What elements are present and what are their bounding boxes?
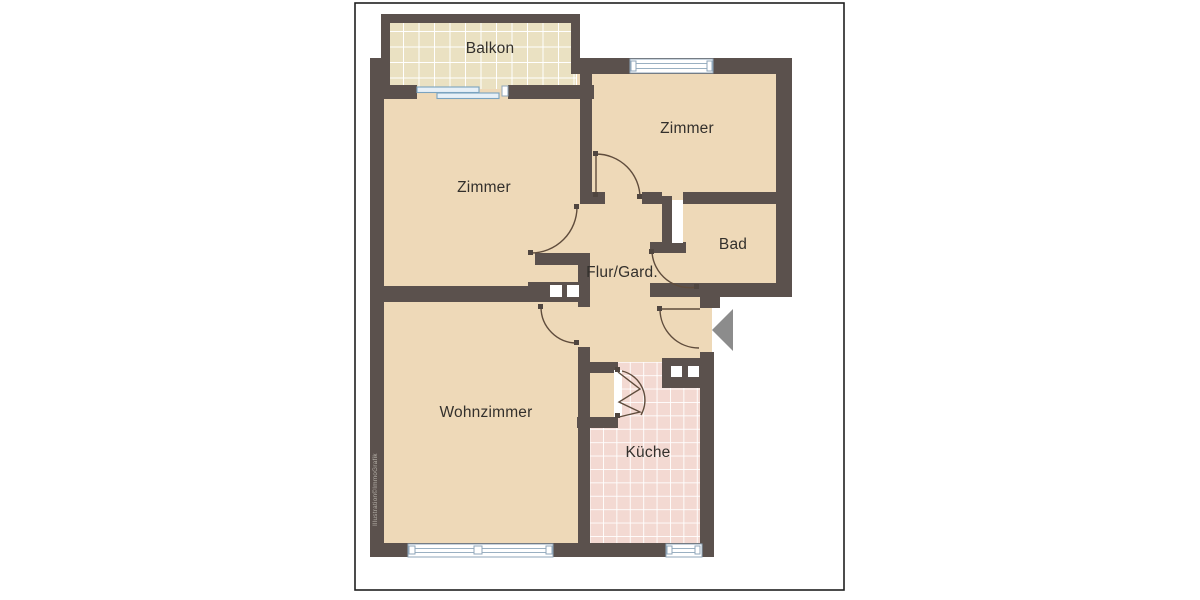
shaft-square <box>688 366 699 377</box>
window-wohnzimmer <box>408 544 553 557</box>
floor-zimmer-right <box>577 65 787 210</box>
label-kueche: Küche <box>626 444 671 461</box>
bad-door-opening <box>672 200 683 243</box>
window-kueche <box>666 544 702 557</box>
shaft-square <box>567 285 579 297</box>
kitchen-door-opening <box>614 370 622 417</box>
window-zimmer-right <box>630 59 713 73</box>
shaft-square <box>671 366 682 377</box>
floorplan-canvas: Balkon Zimmer Zimmer Bad Flur/Gard. Wohn… <box>0 0 1200 600</box>
label-zimmer-right: Zimmer <box>660 120 714 137</box>
label-bad: Bad <box>719 236 747 253</box>
floor-zimmer-left-wohnzimmer <box>377 85 587 550</box>
watermark-text: Illustration©ImmoGrafik <box>371 453 379 526</box>
label-wohnzimmer: Wohnzimmer <box>439 404 532 421</box>
label-flur-garderobe: Flur/Gard. <box>586 264 658 281</box>
label-balkon: Balkon <box>466 40 515 57</box>
shaft-square <box>550 285 562 297</box>
label-zimmer-left: Zimmer <box>457 179 511 196</box>
